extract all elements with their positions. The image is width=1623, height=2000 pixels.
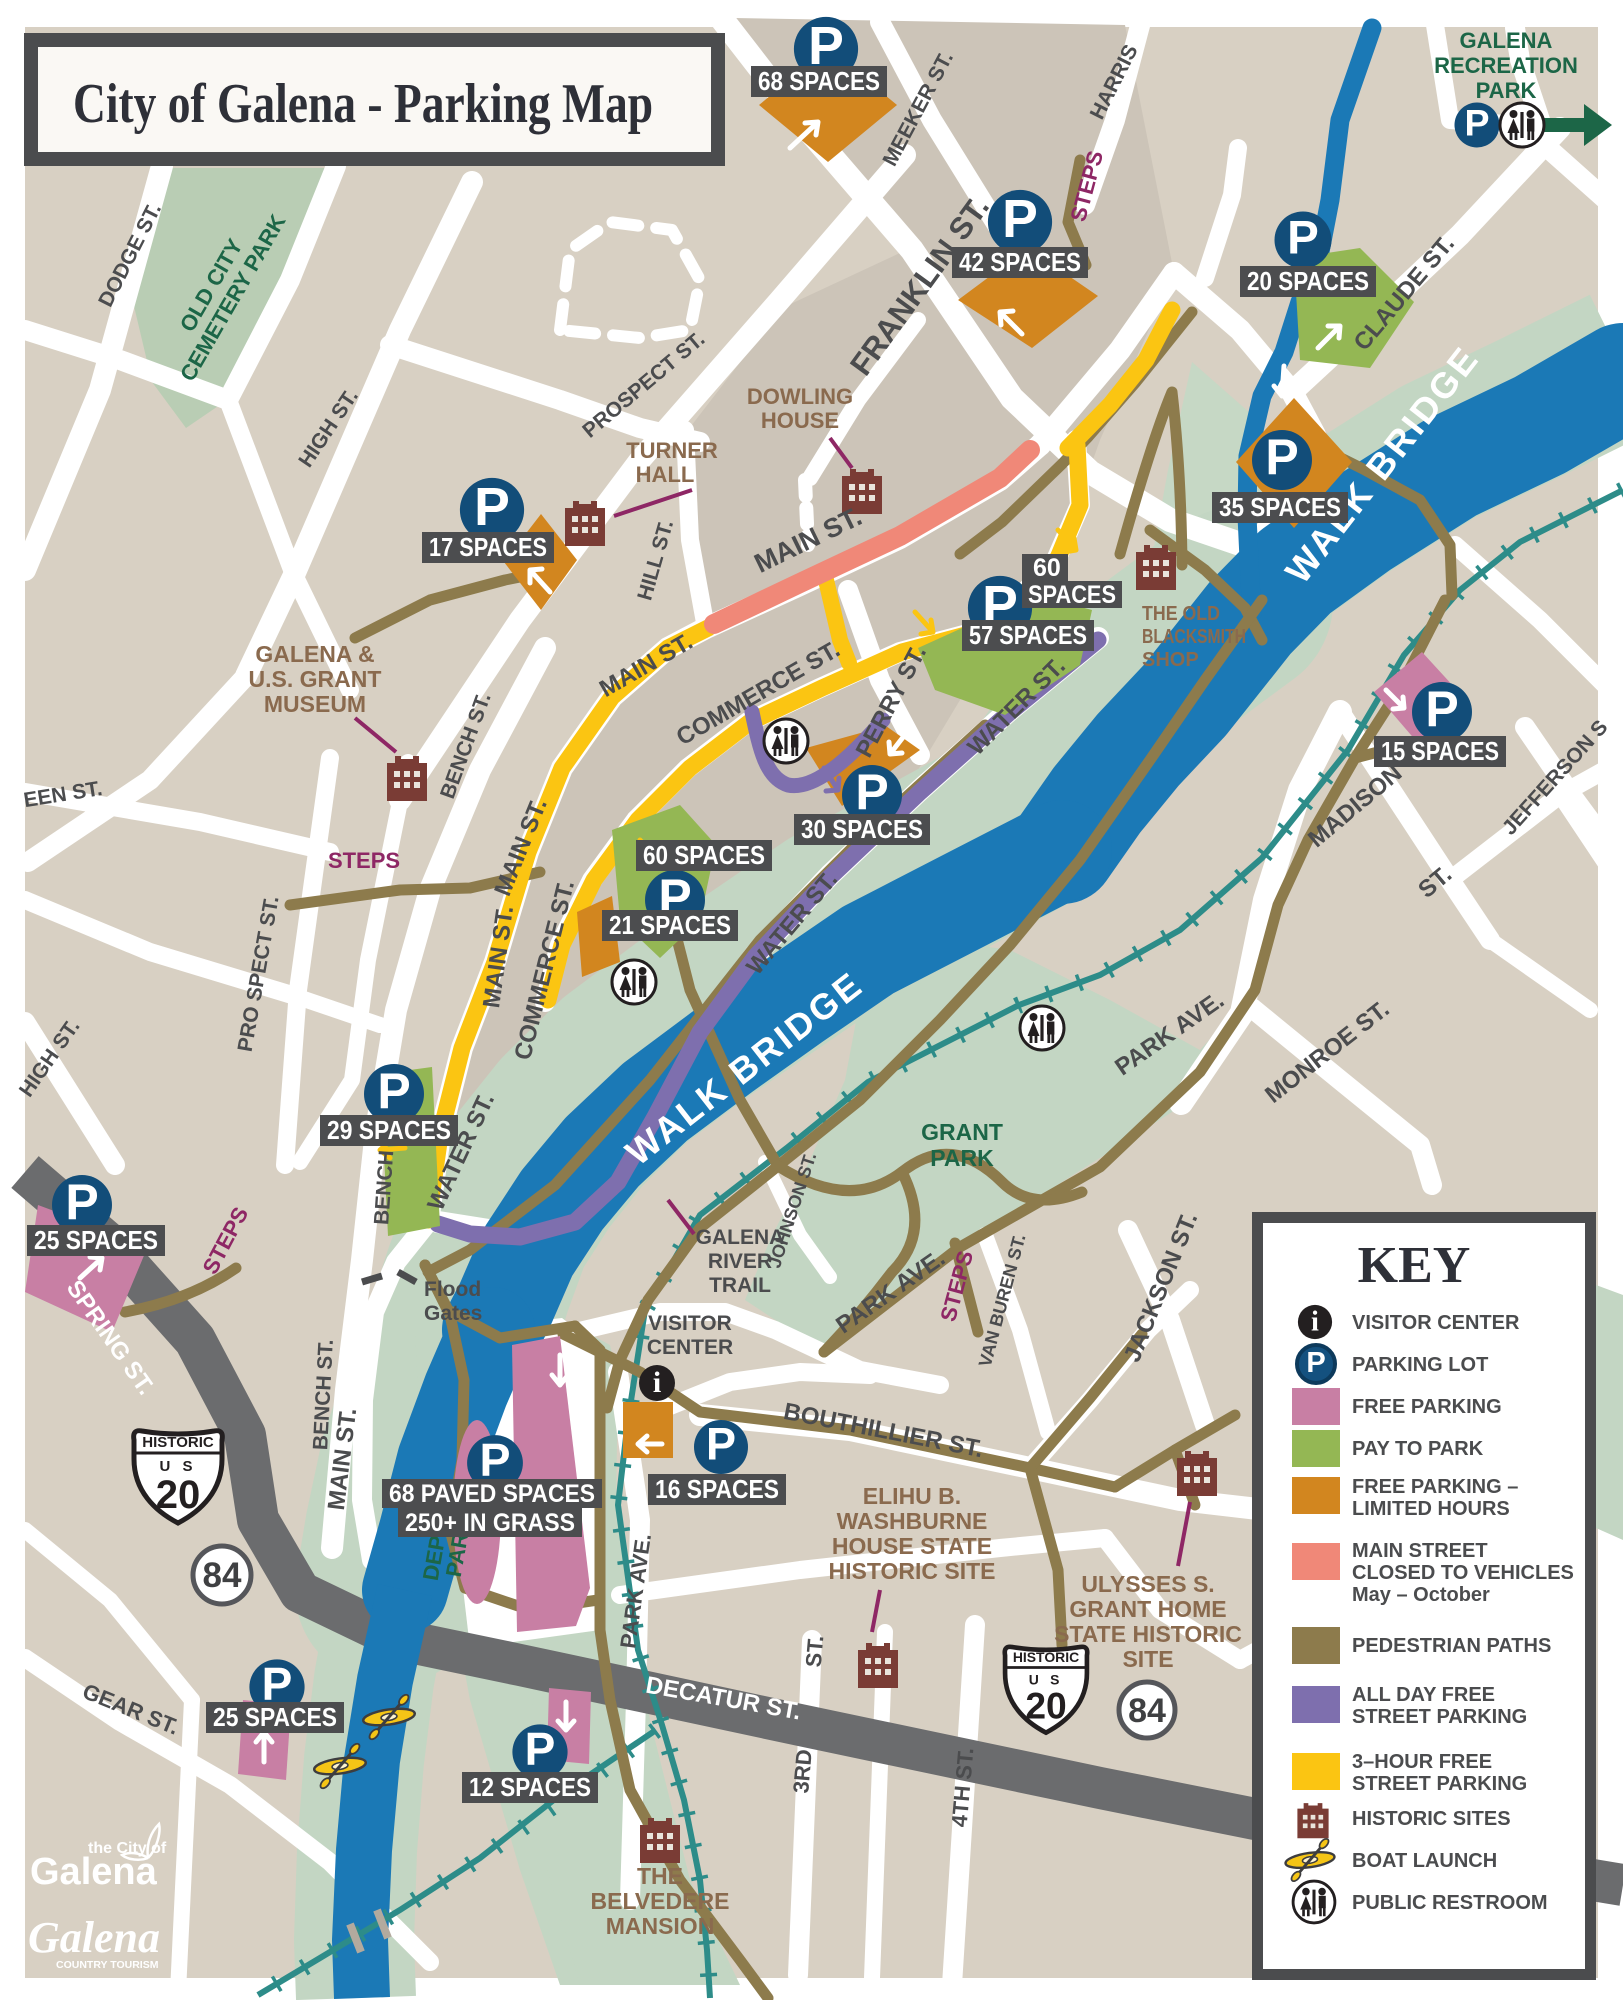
svg-text:3–HOUR FREE: 3–HOUR FREE — [1352, 1751, 1492, 1773]
svg-text:30 SPACES: 30 SPACES — [801, 814, 923, 844]
svg-text:250+ IN GRASS: 250+ IN GRASS — [405, 1509, 575, 1537]
svg-text:SITE: SITE — [1122, 1646, 1173, 1672]
svg-text:PARKING LOT: PARKING LOT — [1352, 1354, 1488, 1376]
svg-text:City of Galena - Parking Map: City of Galena - Parking Map — [73, 73, 653, 135]
svg-text:TRAIL: TRAIL — [709, 1274, 771, 1297]
svg-text:ELIHU B.: ELIHU B. — [863, 1483, 961, 1509]
svg-text:KEY: KEY — [1358, 1237, 1471, 1294]
svg-text:FREE PARKING: FREE PARKING — [1352, 1396, 1502, 1418]
svg-text:ULYSSES S.: ULYSSES S. — [1081, 1571, 1214, 1597]
svg-text:PARK: PARK — [930, 1145, 994, 1171]
svg-text:84: 84 — [1128, 1692, 1166, 1730]
svg-text:RECREATION: RECREATION — [1434, 53, 1578, 78]
svg-text:HISTORIC: HISTORIC — [1013, 1649, 1079, 1665]
svg-text:68 SPACES: 68 SPACES — [758, 66, 880, 96]
svg-text:PEDESTRIAN PATHS: PEDESTRIAN PATHS — [1352, 1635, 1551, 1657]
svg-text:RIVER: RIVER — [708, 1250, 772, 1273]
svg-text:PAY TO PARK: PAY TO PARK — [1352, 1438, 1484, 1460]
svg-text:42 SPACES: 42 SPACES — [959, 247, 1081, 277]
svg-text:35 SPACES: 35 SPACES — [1219, 492, 1341, 522]
svg-text:20: 20 — [156, 1473, 201, 1517]
svg-text:Galena: Galena — [30, 1851, 158, 1893]
svg-text:60: 60 — [1033, 554, 1061, 582]
svg-text:HISTORIC SITES: HISTORIC SITES — [1352, 1808, 1511, 1830]
svg-text:GALENA &: GALENA & — [255, 641, 374, 667]
svg-text:GRANT HOME: GRANT HOME — [1069, 1596, 1226, 1622]
svg-text:ALL DAY FREE: ALL DAY FREE — [1352, 1684, 1495, 1706]
svg-text:25 SPACES: 25 SPACES — [213, 1702, 337, 1732]
svg-text:HALL: HALL — [636, 462, 695, 487]
svg-text:THE: THE — [637, 1863, 683, 1889]
svg-text:STATE HISTORIC: STATE HISTORIC — [1054, 1621, 1242, 1647]
svg-text:COUNTRY TOURISM: COUNTRY TOURISM — [56, 1959, 159, 1971]
svg-text:THE OLD: THE OLD — [1142, 603, 1220, 625]
svg-text:SPACES: SPACES — [1028, 581, 1116, 609]
svg-text:May – October: May – October — [1352, 1584, 1490, 1606]
svg-text:Flood: Flood — [424, 1278, 481, 1301]
svg-text:CENTER: CENTER — [647, 1336, 733, 1359]
svg-text:20 SPACES: 20 SPACES — [1247, 266, 1369, 296]
svg-text:17 SPACES: 17 SPACES — [429, 532, 547, 562]
svg-text:GRANT: GRANT — [921, 1119, 1003, 1145]
svg-text:MUSEUM: MUSEUM — [264, 691, 366, 717]
svg-text:MANSION: MANSION — [606, 1913, 715, 1939]
svg-text:20: 20 — [1025, 1685, 1066, 1727]
svg-text:U.S. GRANT: U.S. GRANT — [249, 666, 382, 692]
svg-text:GALENA: GALENA — [1460, 28, 1553, 53]
svg-text:68 PAVED SPACES: 68 PAVED SPACES — [389, 1480, 595, 1508]
svg-text:84: 84 — [203, 1556, 242, 1595]
svg-text:STREET PARKING: STREET PARKING — [1352, 1706, 1527, 1728]
svg-text:PARK: PARK — [1476, 78, 1537, 103]
svg-text:3RD: 3RD — [788, 1748, 817, 1794]
svg-text:ST.: ST. — [801, 1634, 829, 1668]
svg-text:STREET PARKING: STREET PARKING — [1352, 1773, 1527, 1795]
svg-text:FREE PARKING –: FREE PARKING – — [1352, 1476, 1518, 1498]
svg-text:16 SPACES: 16 SPACES — [655, 1474, 779, 1504]
svg-text:GALENA: GALENA — [696, 1226, 785, 1249]
svg-text:57 SPACES: 57 SPACES — [969, 620, 1087, 650]
svg-text:25 SPACES: 25 SPACES — [34, 1225, 158, 1255]
svg-text:Gates: Gates — [424, 1302, 482, 1325]
svg-text:29 SPACES: 29 SPACES — [327, 1115, 451, 1145]
svg-text:WASHBURNE: WASHBURNE — [837, 1508, 988, 1534]
svg-text:VISITOR CENTER: VISITOR CENTER — [1352, 1312, 1520, 1334]
svg-text:12 SPACES: 12 SPACES — [469, 1772, 591, 1802]
svg-text:DOWLING: DOWLING — [747, 384, 853, 409]
svg-text:BELVEDERE: BELVEDERE — [591, 1888, 730, 1914]
svg-text:HISTORIC: HISTORIC — [142, 1434, 214, 1451]
svg-text:15 SPACES: 15 SPACES — [1381, 736, 1499, 766]
svg-text:MAIN STREET: MAIN STREET — [1352, 1540, 1488, 1562]
svg-text:SHOP: SHOP — [1142, 649, 1199, 671]
svg-text:HOUSE STATE: HOUSE STATE — [832, 1533, 992, 1559]
svg-text:60 SPACES: 60 SPACES — [643, 840, 765, 870]
svg-text:HOUSE: HOUSE — [761, 408, 839, 433]
svg-text:HISTORIC SITE: HISTORIC SITE — [829, 1558, 996, 1584]
svg-text:BOAT LAUNCH: BOAT LAUNCH — [1352, 1850, 1497, 1872]
svg-text:STEPS: STEPS — [328, 848, 400, 873]
svg-text:TURNER: TURNER — [626, 438, 718, 463]
svg-text:CLOSED TO VEHICLES: CLOSED TO VEHICLES — [1352, 1562, 1574, 1584]
svg-text:BLACKSMITH: BLACKSMITH — [1142, 626, 1246, 648]
svg-text:P: P — [1306, 1347, 1325, 1379]
svg-text:21 SPACES: 21 SPACES — [609, 910, 731, 940]
svg-text:Galena: Galena — [28, 1913, 160, 1962]
svg-text:VISITOR: VISITOR — [648, 1312, 732, 1335]
svg-text:PUBLIC RESTROOM: PUBLIC RESTROOM — [1352, 1892, 1548, 1914]
svg-text:LIMITED HOURS: LIMITED HOURS — [1352, 1498, 1510, 1520]
